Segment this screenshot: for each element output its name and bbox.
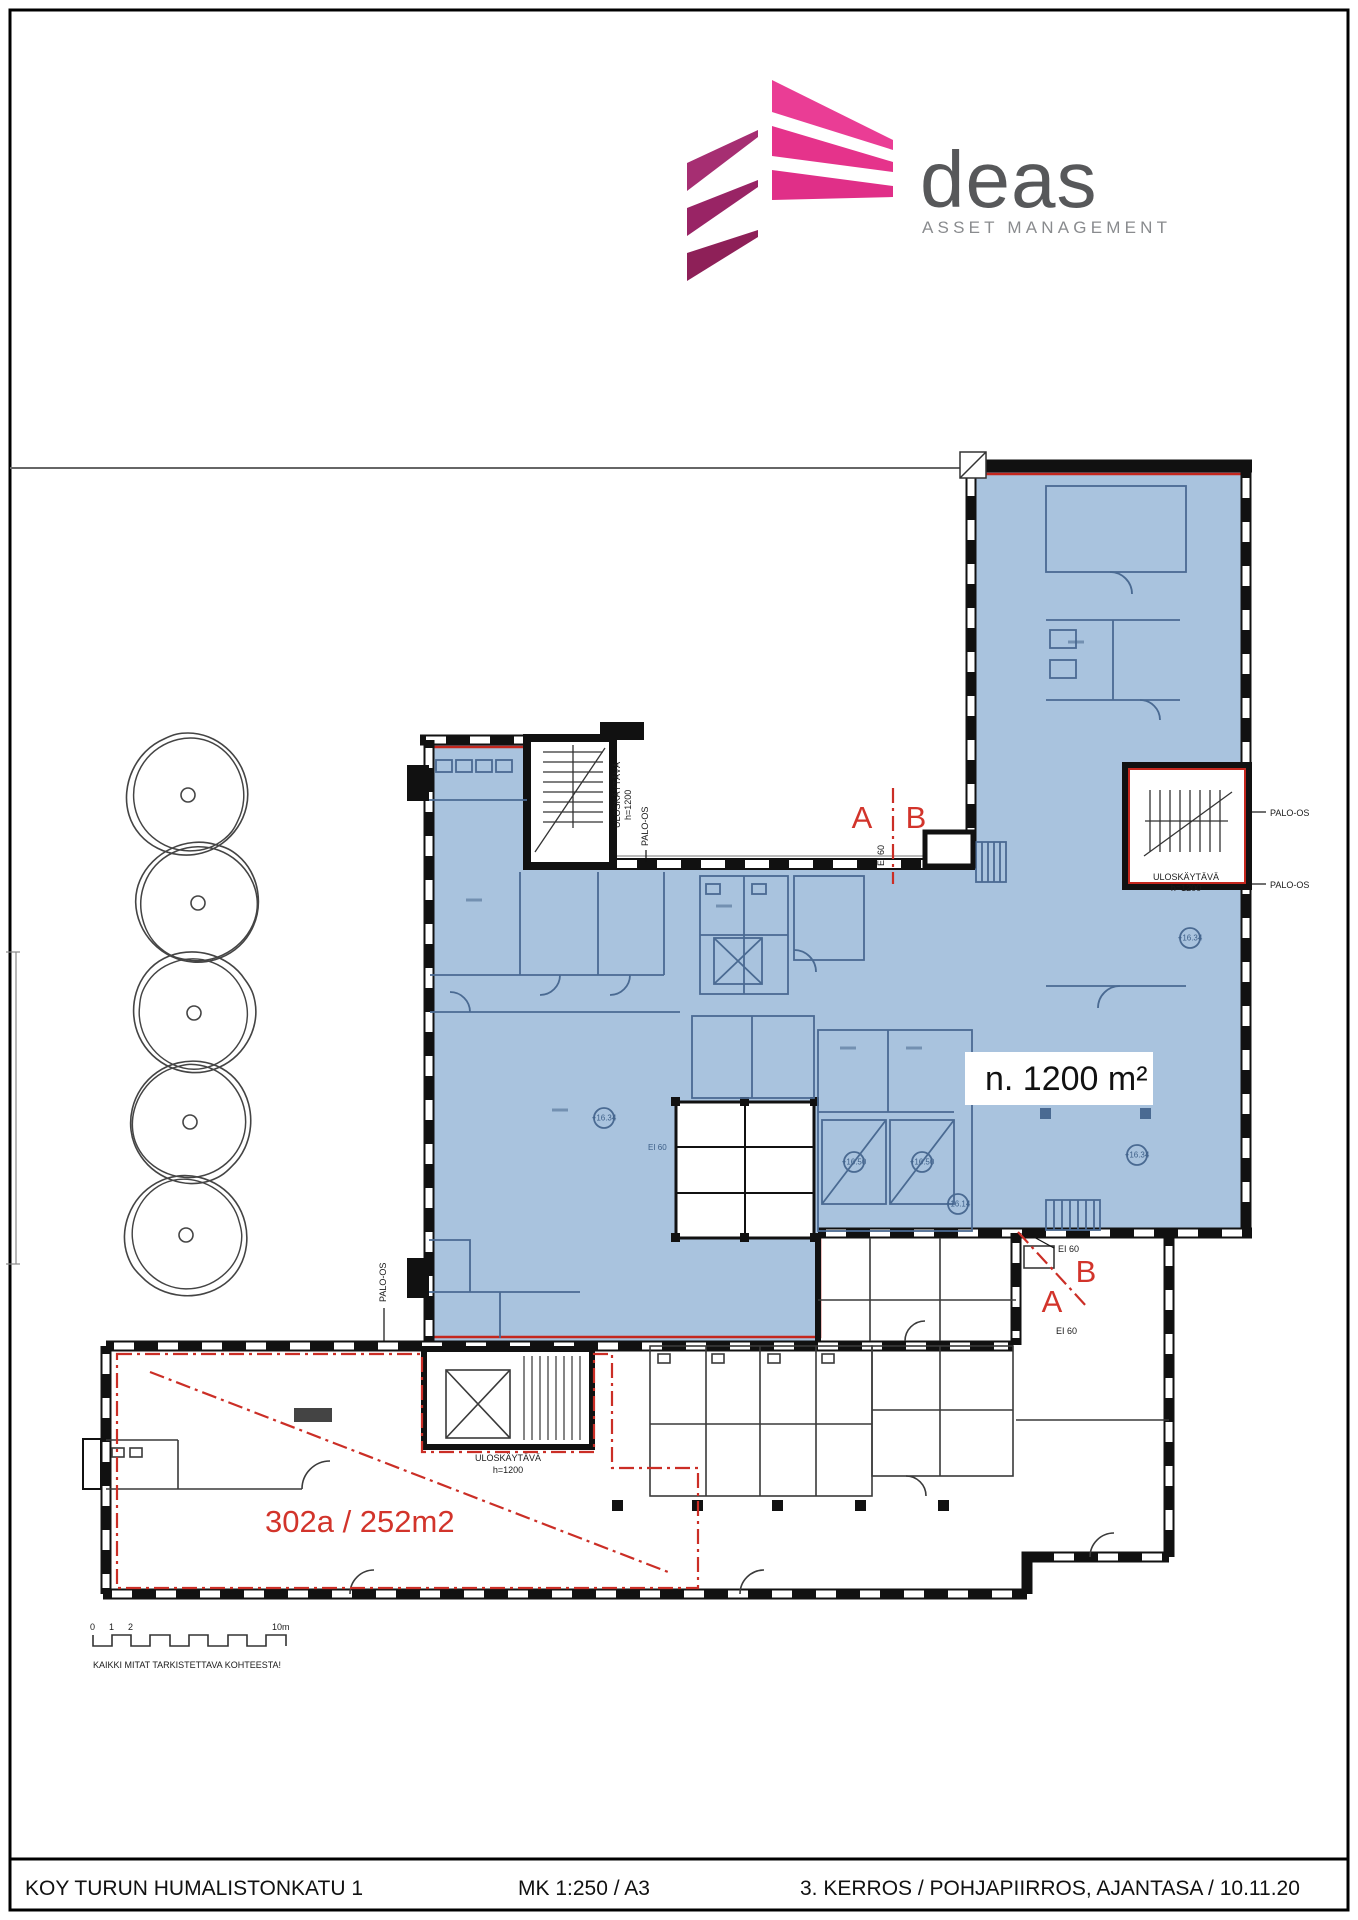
wall-niche-box (925, 832, 973, 866)
ei60-gap: EI 60 (1056, 1326, 1077, 1336)
stair-height-label-lower: h=1200 (493, 1465, 523, 1475)
section-b-bottom: B (1076, 1254, 1097, 1289)
section-a-top: A (852, 800, 873, 835)
stair-height-label-east: h=1200 (1171, 883, 1201, 893)
section-a-bottom: A (1042, 1284, 1063, 1319)
scale-1: 1 (109, 1622, 114, 1632)
stair-exit-label-nw: ULOSKÄYTÄVÄ (612, 762, 622, 828)
furniture (294, 1408, 332, 1422)
unit-302a-label: 302a / 252m2 (265, 1504, 455, 1539)
stair-exit-label-east: ULOSKÄYTÄVÄ (1153, 872, 1219, 882)
scale-note: KAIKKI MITAT TARKISTETTAVA KOHTEESTA! (93, 1660, 281, 1670)
scale-0: 0 (90, 1622, 95, 1632)
ei60-top: EI 60 (876, 845, 886, 866)
palo-os-east-2: PALO-OS (1270, 880, 1309, 890)
palo-os-nw: PALO-OS (640, 807, 650, 846)
drawing-scale: MK 1:250 / A3 (518, 1877, 650, 1900)
drawing-sheet: deas ASSET MANAGEMENT (0, 0, 1358, 1920)
palo-os-sw: PALO-OS (378, 1263, 388, 1302)
svg-text:n. 1200 m²: n. 1200 m² (985, 1060, 1148, 1098)
brand-name: deas (920, 135, 1097, 224)
svg-text:+16.14: +16.14 (946, 1200, 971, 1209)
svg-text:+16.50: +16.50 (910, 1158, 935, 1167)
stair-height-label-nw: h=1200 (623, 790, 633, 820)
brand-tagline: ASSET MANAGEMENT (922, 218, 1171, 237)
stair-exit-label-lower: ULOSKÄYTÄVÄ (475, 1453, 541, 1463)
scale-2: 2 (128, 1622, 133, 1632)
ei60-bottom: EI 60 (1058, 1244, 1079, 1254)
ei60-hall: EI 60 (648, 1143, 667, 1152)
svg-text:+16.50: +16.50 (842, 1158, 867, 1167)
drawing-title: 3. KERROS / POHJAPIIRROS, AJANTASA / 10.… (800, 1877, 1300, 1900)
svg-text:+16.34: +16.34 (1178, 934, 1203, 943)
project-name: KOY TURUN HUMALISTONKATU 1 (25, 1877, 363, 1900)
svg-text:+16.34: +16.34 (592, 1114, 617, 1123)
section-b-top: B (906, 800, 927, 835)
atrium-grid (671, 1097, 819, 1242)
scale-10m: 10m (272, 1622, 290, 1632)
floor-plan-drawing: deas ASSET MANAGEMENT (0, 0, 1358, 1920)
svg-text:+16.34: +16.34 (1125, 1151, 1150, 1160)
area-1200-label: n. 1200 m² (965, 1052, 1153, 1105)
palo-os-east-1: PALO-OS (1270, 808, 1309, 818)
stair-core-east-detail: ULOSKÄYTÄVÄ h=1200 (1126, 766, 1248, 893)
